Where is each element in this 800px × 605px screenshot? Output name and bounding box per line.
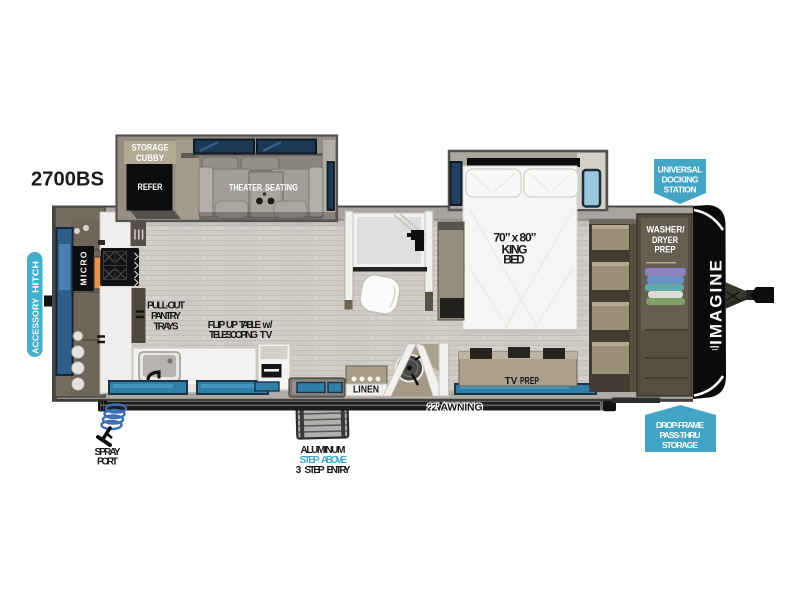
svg-text:22’: 22’ bbox=[427, 402, 439, 414]
svg-text:REFER: REFER bbox=[138, 182, 163, 192]
svg-text:BED: BED bbox=[503, 253, 525, 267]
svg-text:TELESCOPING: TELESCOPING bbox=[209, 330, 258, 341]
svg-text:STATION: STATION bbox=[664, 185, 697, 195]
svg-text:LINEN: LINEN bbox=[353, 385, 379, 396]
svg-text:STEP: STEP bbox=[305, 465, 325, 476]
svg-text:STORAGE: STORAGE bbox=[132, 143, 169, 154]
svg-text:PORT: PORT bbox=[97, 457, 118, 468]
svg-text:HITCH: HITCH bbox=[31, 261, 41, 293]
svg-text:DOCKING: DOCKING bbox=[662, 175, 699, 185]
svg-text:PANTRY: PANTRY bbox=[151, 311, 181, 322]
svg-text:PREP: PREP bbox=[655, 245, 677, 256]
svg-text:WASHER/: WASHER/ bbox=[647, 225, 685, 236]
svg-text:ENTRY: ENTRY bbox=[327, 465, 351, 476]
svg-text:PASS-THRU: PASS-THRU bbox=[660, 430, 701, 440]
svg-text:TV: TV bbox=[260, 330, 273, 341]
svg-text:PREP: PREP bbox=[520, 375, 539, 387]
svg-text:AWNING: AWNING bbox=[441, 402, 483, 414]
svg-text:THEATER: THEATER bbox=[229, 183, 262, 194]
svg-text:TV: TV bbox=[505, 375, 518, 387]
svg-text:CUBBY: CUBBY bbox=[136, 153, 165, 164]
svg-text:DROP-FRAME: DROP-FRAME bbox=[656, 420, 704, 430]
svg-text:UNIVERSAL: UNIVERSAL bbox=[658, 165, 703, 175]
svg-text:TRAYS: TRAYS bbox=[154, 322, 179, 333]
svg-text:STORAGE: STORAGE bbox=[662, 440, 698, 450]
svg-text:MICRO: MICRO bbox=[79, 251, 89, 285]
svg-text:IMAGINE: IMAGINE bbox=[707, 258, 726, 345]
svg-text:3: 3 bbox=[296, 465, 302, 476]
svg-text:PULL-OUT: PULL-OUT bbox=[147, 301, 185, 312]
svg-text:ACCESSORY: ACCESSORY bbox=[31, 298, 41, 354]
svg-text:SEATING: SEATING bbox=[265, 183, 298, 194]
svg-text:2700BS: 2700BS bbox=[31, 169, 104, 191]
